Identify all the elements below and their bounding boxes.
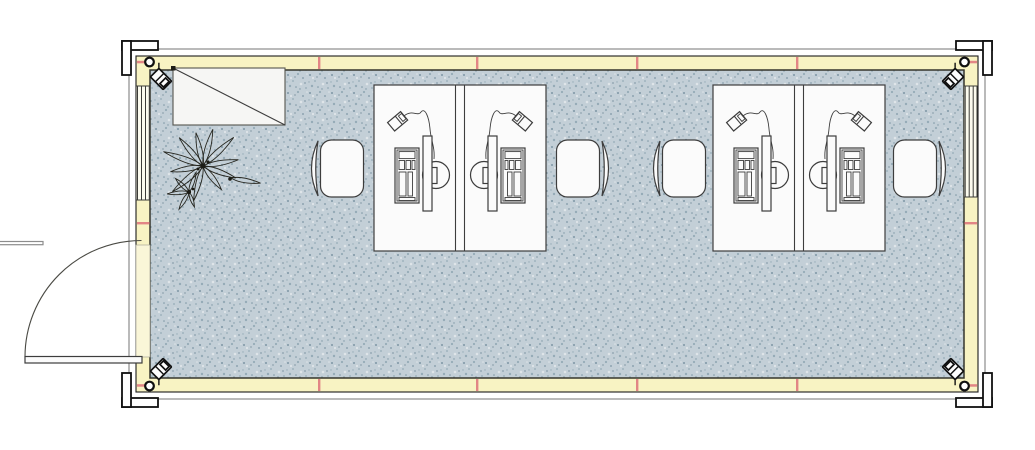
floor-plan-canvas [0, 0, 1035, 450]
desk-cluster-2 [713, 85, 885, 251]
desk-cluster-1 [374, 85, 546, 251]
cabinet-corner-marker [171, 66, 176, 71]
cabinet [171, 66, 285, 125]
floor-plan-svg [0, 0, 1035, 450]
door-opening [136, 245, 150, 357]
door-swing-arc [25, 241, 142, 357]
window-right [964, 86, 977, 197]
window-left [137, 86, 150, 200]
door-exterior-stub [0, 242, 43, 245]
door [0, 241, 150, 364]
door-leaf [25, 357, 142, 364]
